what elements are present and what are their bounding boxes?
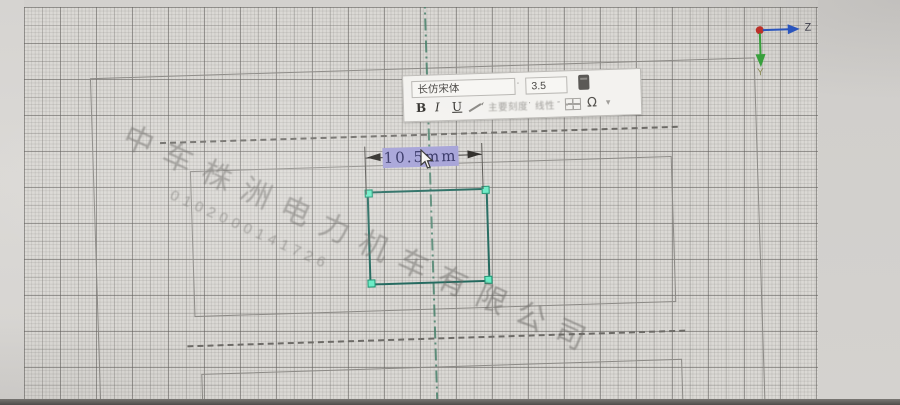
- screen-left-margin: [0, 0, 24, 405]
- y-axis-arrowhead-icon: [756, 54, 766, 67]
- screen-right-margin: [818, 0, 900, 405]
- insert-symbol-button[interactable]: Ω: [587, 94, 597, 111]
- y-axis-label: Y: [757, 67, 764, 78]
- table-grid-icon[interactable]: [565, 98, 581, 110]
- combo-separator-dot: ·: [516, 78, 520, 89]
- corner-handle-bottom-left[interactable]: [367, 279, 375, 287]
- toolbar-separator-dash: -: [557, 96, 561, 107]
- tolerance-type-dropdown[interactable]: 线性: [535, 98, 555, 113]
- dimension-arrow-right: [467, 150, 481, 158]
- cad-screenshot-root: 10.5mm 中车株洲电力机车有限公司 0102000141726 长仿宋体 ·…: [0, 0, 900, 405]
- z-axis-label: Z: [805, 22, 812, 34]
- toolbar-overflow-caret[interactable]: ▾: [606, 94, 611, 111]
- dimension-style-dropdown[interactable]: 主要刻度: [488, 99, 528, 114]
- mouse-cursor-icon: [420, 149, 434, 170]
- underline-button[interactable]: U: [452, 99, 463, 116]
- font-name-select[interactable]: 长仿宋体: [411, 78, 515, 98]
- bold-button[interactable]: B: [416, 100, 427, 117]
- font-size-select[interactable]: 3.5: [525, 76, 568, 94]
- y-axis-arrow: [759, 33, 762, 55]
- line-style-pencil-icon[interactable]: [468, 101, 484, 113]
- text-format-toolbar: 长仿宋体 · 3.5 B I U 主要刻度 · 线性 - Ω ▾: [402, 68, 642, 122]
- screen-top-margin: [0, 0, 900, 7]
- italic-button[interactable]: I: [435, 99, 440, 116]
- drawing-content-layer: 10.5mm 中车株洲电力机车有限公司 0102000141726 长仿宋体 ·…: [0, 0, 900, 405]
- z-axis-arrowhead-icon: [788, 24, 800, 34]
- toolbar-separator-dot: ·: [528, 97, 532, 108]
- dimension-arrow-left: [366, 153, 380, 161]
- screen-bottom-edge: [0, 399, 900, 405]
- z-axis-arrow: [763, 28, 789, 31]
- sketch-axis-triad: Z Y: [719, 2, 831, 80]
- text-style-swatch-icon[interactable]: [578, 75, 589, 90]
